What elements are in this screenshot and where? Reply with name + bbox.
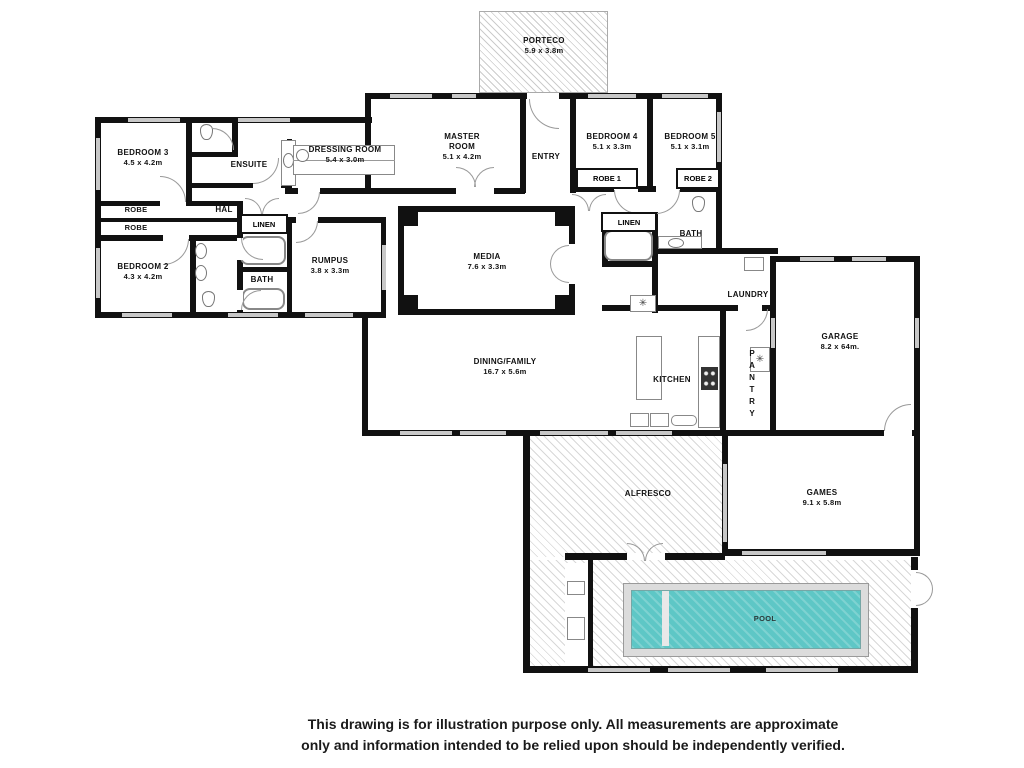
door-arc [884, 404, 911, 431]
room-label-bedroom2: BEDROOM 24.3 x 4.2m [117, 262, 168, 282]
door-arc [656, 190, 680, 214]
robe1-label: ROBE 1 [593, 174, 621, 183]
door-opening [456, 188, 494, 194]
toilet-icon [692, 196, 705, 212]
sink-icon [671, 415, 697, 426]
door-arc [262, 198, 279, 215]
door-arc [529, 99, 559, 129]
spa-divider [662, 591, 669, 646]
wall [95, 218, 241, 222]
window [662, 94, 708, 98]
room-label-robe-lower: ROBE [125, 223, 148, 233]
window [460, 431, 506, 435]
linen-right-box: LINEN [601, 212, 657, 232]
linen-left-label: LINEN [253, 220, 276, 229]
door-arc [589, 194, 606, 211]
basin-icon [668, 238, 684, 248]
window [128, 118, 180, 122]
window [915, 318, 919, 348]
wall [398, 309, 575, 315]
window [400, 431, 452, 435]
bathtub-icon [604, 230, 653, 261]
window [723, 464, 727, 542]
wall [588, 560, 593, 668]
disclaimer: This drawing is for illustration purpose… [301, 714, 845, 756]
wall [602, 261, 656, 267]
room-label-porteco: PORTECO5.9 x 3.8m [523, 36, 565, 56]
room-label-pool: POOL [754, 614, 776, 624]
door-arc [456, 167, 476, 187]
wall [398, 206, 575, 212]
wall [186, 117, 192, 205]
wall [186, 152, 236, 157]
door-arc [746, 309, 768, 331]
laundry-sink-icon [744, 257, 764, 271]
room-label-entry: ENTRY [532, 152, 560, 162]
washer-glyph: ✳ [639, 298, 647, 309]
window [800, 257, 834, 261]
door-arc [298, 192, 320, 214]
door-arc [160, 176, 186, 202]
basin-icon [195, 265, 207, 281]
robe2-box: ROBE 2 [676, 168, 720, 189]
wall [362, 312, 368, 436]
room-label-laundry: LAUNDRY [728, 290, 769, 300]
wall-corner [398, 295, 418, 315]
toilet-icon [202, 291, 215, 307]
door-opening [253, 183, 281, 188]
wall [770, 256, 920, 262]
kitchen-island [636, 336, 662, 400]
room-label-bedroom3: BEDROOM 34.5 x 4.2m [117, 148, 168, 168]
door-arc [916, 572, 933, 589]
room-label-bath-left: BATH [251, 275, 274, 285]
window [588, 94, 636, 98]
window [390, 94, 432, 98]
room-label-bedroom4: BEDROOM 45.1 x 3.3m [586, 132, 637, 152]
room-label-kitchen: KITCHEN [653, 375, 691, 385]
room-label-hall: HAL [215, 205, 232, 215]
linen-left-box: LINEN [240, 214, 288, 234]
wall [232, 117, 238, 157]
room-label-master-room: MASTERROOM5.1 x 4.2m [443, 132, 482, 162]
room-label-garage: GARAGE8.2 x 64m. [821, 332, 860, 352]
room-label-robe-upper: ROBE [125, 205, 148, 215]
door-arc [550, 264, 569, 283]
basin-icon [195, 243, 207, 259]
sink-icon [630, 413, 649, 427]
pool-equipment-icon [567, 617, 585, 640]
robe1-box: ROBE 1 [576, 168, 638, 189]
window [122, 313, 172, 317]
wall-corner [555, 295, 575, 315]
door-arc [296, 221, 318, 243]
washer-icon: ✳ [630, 295, 656, 312]
disclaimer-line2: only and information intended to be reli… [301, 735, 845, 756]
sink-icon [650, 413, 669, 427]
wall [914, 436, 920, 556]
floor-plan: ROBE 1 ROBE 2 LINEN LINEN ✳ ✳ PORTECO5.9… [0, 0, 1024, 768]
window [382, 245, 386, 290]
room-label-dressing-room: DRESSING ROOM5.4 x 3.0m [309, 145, 382, 165]
freezer-glyph: ✳ [756, 354, 764, 365]
window [588, 668, 650, 672]
window [238, 118, 290, 122]
wall [365, 93, 371, 193]
room-label-alfresco: ALFRESCO [625, 489, 671, 499]
window [305, 313, 353, 317]
window [228, 313, 278, 317]
stove-icon [701, 367, 718, 390]
door-arc [245, 198, 262, 215]
door-arc [572, 194, 589, 211]
pool-equipment-icon [567, 581, 585, 595]
door-arc [212, 128, 234, 150]
room-label-ensuite: ENSUITE [231, 160, 268, 170]
wall-corner [398, 206, 418, 226]
door-arc [474, 167, 494, 187]
room-label-games: GAMES9.1 x 5.8m [803, 488, 842, 508]
wall [716, 193, 722, 252]
basin-icon [296, 149, 309, 162]
wall [365, 93, 525, 99]
window [766, 668, 838, 672]
window [616, 431, 672, 435]
door-arc [550, 245, 569, 264]
window [771, 318, 775, 348]
window [668, 668, 730, 672]
window [852, 257, 886, 261]
wall [523, 436, 530, 560]
window [540, 431, 608, 435]
disclaimer-line1: This drawing is for illustration purpose… [301, 714, 845, 735]
room-label-bath-right: BATH [680, 229, 703, 239]
door-opening [569, 244, 575, 284]
wall [720, 311, 726, 436]
window [742, 551, 826, 555]
window [452, 94, 476, 98]
window [96, 248, 100, 298]
utility-strip [565, 563, 589, 666]
linen-right-label: LINEN [618, 218, 641, 227]
door-arc [916, 589, 933, 606]
room-label-dining-family: DINING/FAMILY16.7 x 5.6m [474, 357, 537, 377]
wall [237, 267, 291, 272]
room-label-rumpus: RUMPUS3.8 x 3.3m [311, 256, 350, 276]
window [717, 112, 721, 162]
wall [647, 93, 653, 191]
room-label-media: MEDIA7.6 x 3.3m [468, 252, 507, 272]
robe2-label: ROBE 2 [684, 174, 712, 183]
wall [520, 93, 526, 193]
window [96, 138, 100, 190]
room-label-pantry: PANTRY [748, 349, 757, 421]
room-label-bedroom5: BEDROOM 55.1 x 3.1m [664, 132, 715, 152]
door-arc [614, 190, 638, 214]
wall [523, 557, 530, 673]
